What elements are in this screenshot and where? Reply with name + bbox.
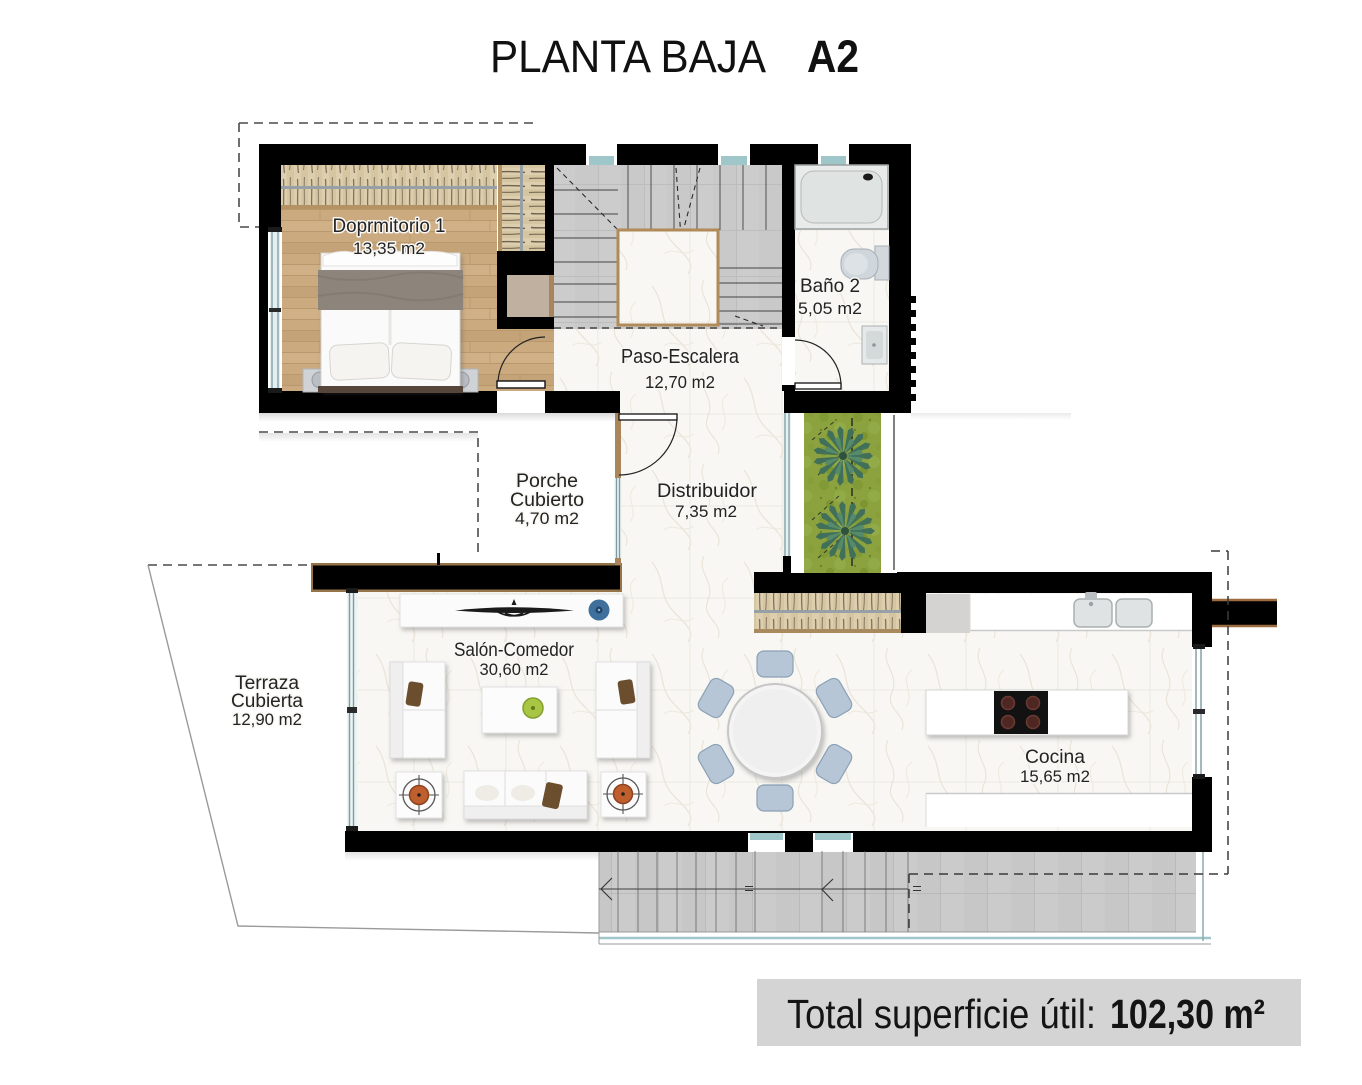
svg-text:13,35 m2: 13,35 m2 — [353, 239, 425, 258]
svg-text:Paso-Escalera: Paso-Escalera — [621, 346, 740, 368]
svg-text:Distribuidor: Distribuidor — [657, 480, 758, 502]
svg-text:5,05 m2: 5,05 m2 — [798, 299, 862, 318]
svg-text:102,30 m²: 102,30 m² — [1110, 991, 1265, 1037]
svg-text:Salón-Comedor: Salón-Comedor — [454, 639, 574, 661]
svg-text:PLANTA BAJA: PLANTA BAJA — [490, 31, 766, 82]
svg-text:12,70 m2: 12,70 m2 — [645, 372, 715, 392]
svg-text:4,70 m2: 4,70 m2 — [515, 509, 579, 528]
svg-text:30,60 m2: 30,60 m2 — [480, 660, 549, 679]
svg-text:Doprmitorio 1: Doprmitorio 1 — [333, 215, 446, 237]
svg-text:12,90 m2: 12,90 m2 — [232, 710, 302, 729]
svg-text:15,65 m2: 15,65 m2 — [1020, 767, 1090, 786]
svg-text:Cubierta: Cubierta — [231, 691, 303, 712]
svg-text:Cubierto: Cubierto — [510, 489, 584, 511]
svg-text:A2: A2 — [807, 31, 859, 82]
svg-text:Total superficie útil:: Total superficie útil: — [787, 991, 1096, 1037]
svg-text:Baño 2: Baño 2 — [800, 275, 860, 297]
svg-text:Cocina: Cocina — [1025, 746, 1085, 768]
svg-text:7,35 m2: 7,35 m2 — [675, 502, 737, 521]
